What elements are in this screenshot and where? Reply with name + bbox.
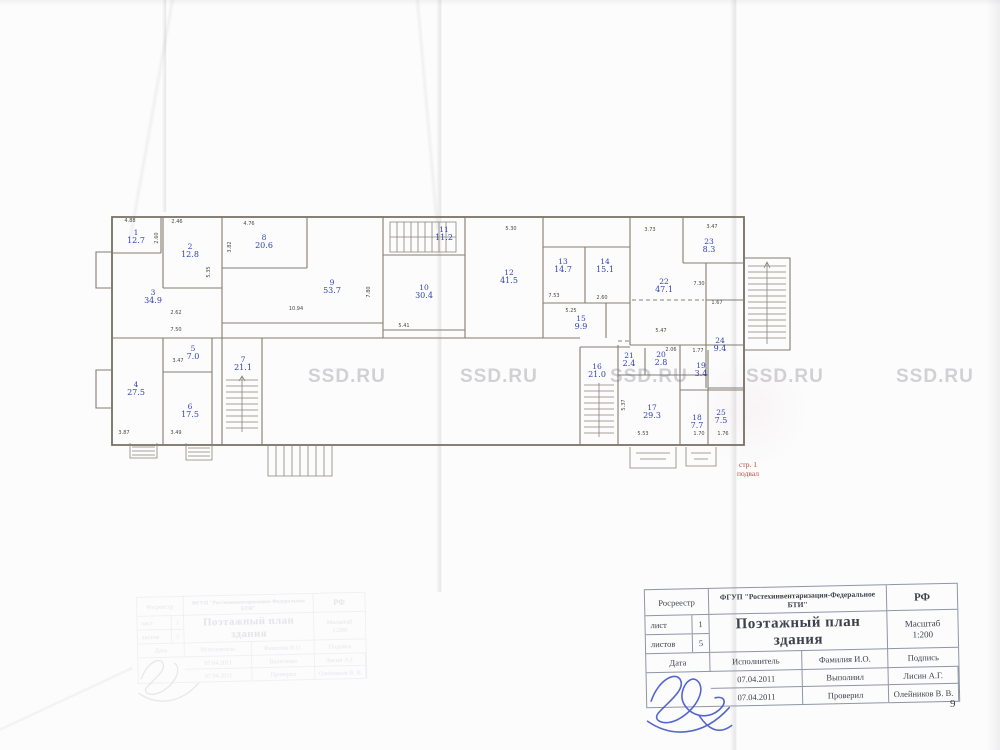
name-header: Фамилия И.О. xyxy=(802,649,888,670)
ghost-text xyxy=(138,657,185,683)
dimension-label: 5.37 xyxy=(621,399,627,410)
dimension-label: 2.06 xyxy=(665,347,676,353)
room-10-label: 1030.4 xyxy=(415,284,433,300)
ghost-text: Поэтажный план здания xyxy=(184,613,315,644)
room-22-label: 2247.1 xyxy=(655,278,673,294)
ghost-text: Олейников В. В. xyxy=(315,666,366,680)
dashed-lines xyxy=(618,300,704,341)
watermark-text: SSD.RU xyxy=(308,366,386,388)
dimension-label: 1.67 xyxy=(711,300,722,306)
dimension-label: 7.30 xyxy=(693,281,704,287)
stairs xyxy=(130,222,786,476)
dimension-label: 5.30 xyxy=(505,226,516,232)
room-13-label: 1314.7 xyxy=(554,258,572,274)
dimension-label: 4.76 xyxy=(243,221,254,227)
room-15-label: 159.9 xyxy=(575,315,588,331)
room-23-label: 238.3 xyxy=(703,238,716,254)
dimension-label: 2.46 xyxy=(171,219,182,225)
dimension-label: 2.62 xyxy=(170,310,181,316)
interior-walls xyxy=(96,217,790,445)
title-block-ghost: Росреестр ФГУП "Ростехинвентаризация-Фед… xyxy=(136,592,367,684)
signature-cell xyxy=(647,672,712,707)
room-25-label: 257.5 xyxy=(715,409,728,425)
signature-header: Подпись xyxy=(888,648,958,668)
page-number: 9 xyxy=(950,698,956,710)
name-value: Олейников В. В. xyxy=(889,684,959,702)
sheet-label: лист xyxy=(645,619,691,630)
organization-name: ФГУП "Ростехинвентаризация-Федеральное Б… xyxy=(709,585,888,615)
ghost-text: Подпись xyxy=(314,639,365,654)
sheets-label: листов xyxy=(646,638,692,649)
room-1-label: 112.7 xyxy=(127,229,145,245)
registry-label: Росреестр xyxy=(645,589,710,616)
dimension-label: 2.60 xyxy=(596,295,607,301)
dimension-label: 3.47 xyxy=(706,224,717,230)
ghost-text: Росреестр xyxy=(137,597,184,617)
dimension-label: 3.49 xyxy=(170,430,181,436)
room-14-label: 1415.1 xyxy=(596,258,614,274)
dimension-label: 7.50 xyxy=(170,327,181,333)
scale-label: Масштаб xyxy=(905,618,941,630)
room-17-label: 1729.3 xyxy=(643,404,661,420)
dimension-label: 1.77 xyxy=(692,348,703,354)
watermark-text: SSD.RU xyxy=(896,366,974,388)
room-20-label: 202.8 xyxy=(655,351,668,367)
dimension-label: 3.73 xyxy=(644,227,655,233)
title-block: Росреестр ФГУП "Ростехинвентаризация-Фед… xyxy=(644,583,960,709)
scale-value: 1:200 xyxy=(912,629,933,640)
role-value: Выполнил xyxy=(803,668,889,687)
dimension-label: 7.80 xyxy=(366,286,372,297)
role-value: Проверил xyxy=(803,685,889,704)
dimension-label: 2.60 xyxy=(154,232,160,243)
room-5-label: 57.0 xyxy=(187,345,200,361)
room-9-label: 953.7 xyxy=(323,279,341,295)
ghost-text: Масштаб1:200 xyxy=(314,612,366,641)
room-24-label: 249.4 xyxy=(714,337,727,353)
room-4-label: 427.5 xyxy=(127,381,145,397)
dimension-label: 7.53 xyxy=(548,293,559,299)
ghost-text: Лисин А.Г. xyxy=(315,653,366,667)
watermark-text: SSD.RU xyxy=(460,366,538,388)
dimension-label: 3.87 xyxy=(118,430,129,436)
sheet-counter: лист 1 листов 5 xyxy=(645,615,710,654)
dimension-label: 1.70 xyxy=(693,431,704,437)
watermark-text: SSD.RU xyxy=(746,366,824,388)
room-12-label: 1241.5 xyxy=(500,269,518,285)
dimension-label: 3.47 xyxy=(172,358,183,364)
page-ref-line2: подвал xyxy=(722,470,774,479)
room-6-label: 617.5 xyxy=(181,403,199,419)
watermark-text: SSD.RU xyxy=(610,366,688,388)
room-7-label: 721.1 xyxy=(234,356,252,372)
dimension-label: 1.76 xyxy=(717,431,728,437)
room-2-label: 212.8 xyxy=(181,243,199,259)
document-title: Поэтажный план здания xyxy=(709,611,888,653)
room-19-label: 193.4 xyxy=(695,362,708,378)
sheets-value: 5 xyxy=(692,634,709,652)
page-reference-note: стр. 1 подвал xyxy=(722,461,774,478)
dimension-label: 5.35 xyxy=(206,266,212,277)
ghost-text: РФ xyxy=(313,593,365,613)
sheet-value: 1 xyxy=(691,615,708,633)
room-16-label: 1621.0 xyxy=(588,363,606,379)
scanned-page: 112.7212.8334.9427.557.0617.5721.1820.69… xyxy=(0,0,1000,750)
room-18-label: 187.7 xyxy=(691,414,704,430)
room-3-label: 334.9 xyxy=(144,289,162,305)
ghost-text: Проверил xyxy=(252,667,315,681)
country-label: РФ xyxy=(887,584,958,611)
room-11-label: 1111.2 xyxy=(435,226,453,242)
scale-box: Масштаб 1:200 xyxy=(887,610,958,649)
dimension-label: 5.25 xyxy=(565,308,576,314)
name-value: Лисин А.Г. xyxy=(888,667,958,685)
dimension-label: 5.47 xyxy=(655,328,666,334)
dimension-label: 4.88 xyxy=(124,218,135,224)
ghost-text: лист1 листов5 xyxy=(137,616,184,645)
dimension-label: 10.94 xyxy=(289,306,303,312)
ghost-text: Фамилия И.О. xyxy=(252,640,315,655)
dimension-label: 5.41 xyxy=(398,323,409,329)
dimension-label: 5.53 xyxy=(637,431,648,437)
room-8-label: 820.6 xyxy=(255,234,273,250)
dimension-label: 3.82 xyxy=(227,241,233,252)
signature-scribble xyxy=(640,667,738,747)
